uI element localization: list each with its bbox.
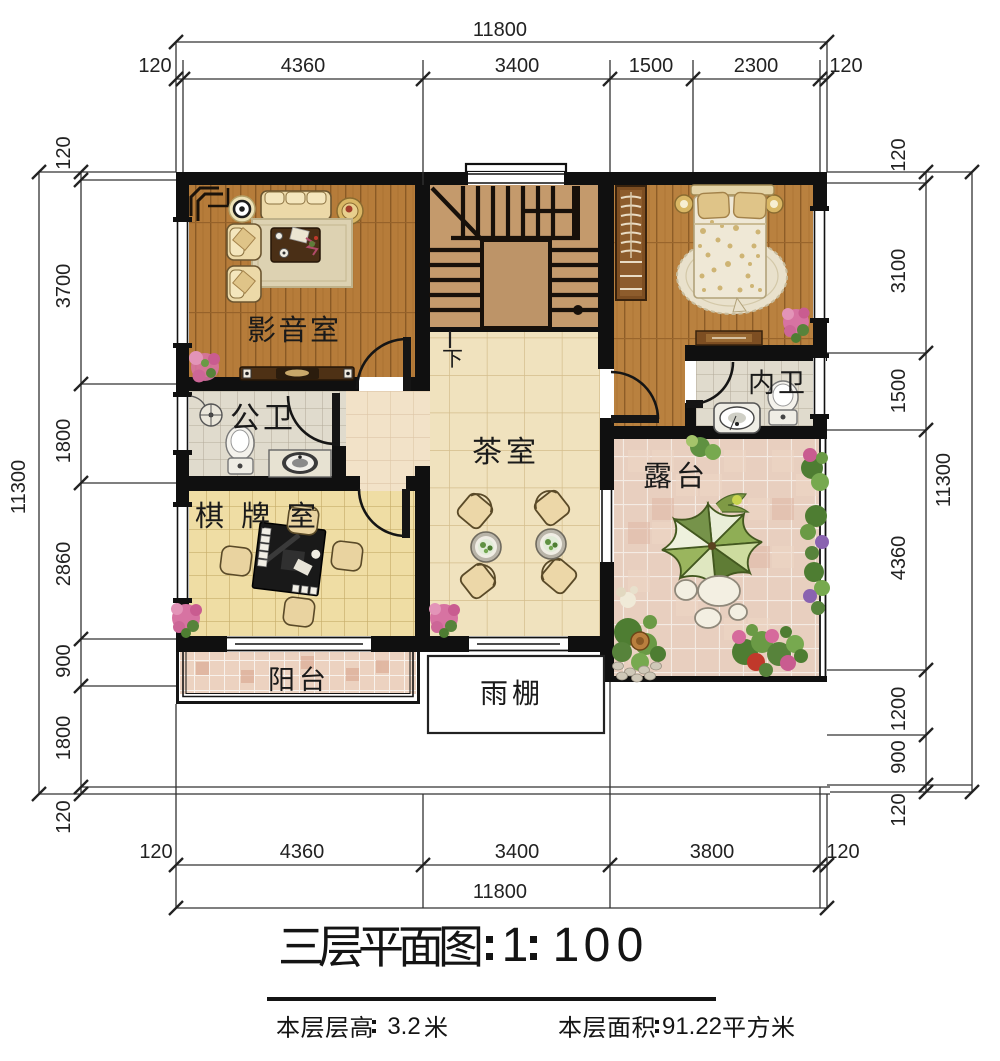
svg-text:900: 900	[53, 644, 75, 677]
svg-text:120: 120	[826, 841, 859, 863]
svg-text:3.2: 3.2	[387, 1013, 420, 1040]
svg-text:3400: 3400	[495, 841, 540, 863]
svg-text:2860: 2860	[53, 542, 75, 587]
svg-text:1800: 1800	[53, 716, 75, 761]
svg-text:1800: 1800	[53, 419, 75, 464]
svg-text:11300: 11300	[933, 453, 955, 507]
svg-text:900: 900	[888, 740, 910, 773]
svg-text:2300: 2300	[734, 55, 779, 77]
svg-text:3800: 3800	[690, 841, 735, 863]
svg-text:120: 120	[829, 55, 862, 77]
svg-text:120: 120	[139, 841, 172, 863]
svg-text:1: 1	[502, 919, 529, 972]
svg-text:4360: 4360	[280, 841, 325, 863]
svg-text:4360: 4360	[281, 55, 326, 77]
svg-text:120: 120	[138, 55, 171, 77]
svg-text:1500: 1500	[629, 55, 674, 77]
svg-text:120: 120	[888, 138, 910, 171]
svg-text:11800: 11800	[473, 881, 527, 903]
svg-text:11300: 11300	[8, 460, 30, 514]
svg-text:120: 120	[888, 793, 910, 826]
svg-text:3400: 3400	[495, 55, 540, 77]
svg-text:120: 120	[53, 136, 75, 169]
svg-text:1500: 1500	[888, 369, 910, 414]
svg-text:0: 0	[617, 919, 644, 972]
svg-text:4360: 4360	[888, 536, 910, 581]
svg-text:1200: 1200	[888, 687, 910, 732]
svg-text:1: 1	[553, 919, 580, 972]
svg-text:11800: 11800	[473, 19, 527, 41]
svg-text:0: 0	[584, 919, 611, 972]
svg-text:91.22: 91.22	[662, 1013, 722, 1040]
svg-text:3700: 3700	[53, 264, 75, 309]
svg-text:120: 120	[53, 800, 75, 833]
svg-text:3100: 3100	[888, 249, 910, 294]
